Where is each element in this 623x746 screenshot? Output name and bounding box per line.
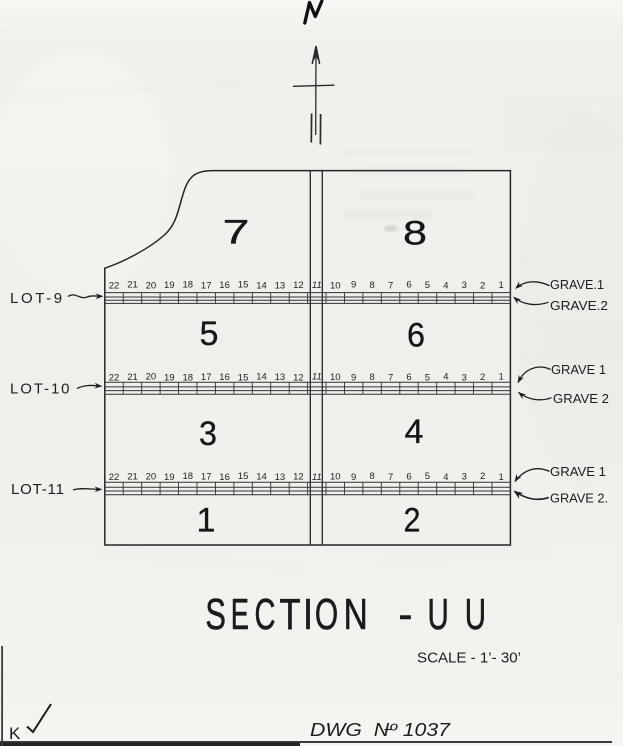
svg-text:2: 2 — [480, 471, 485, 482]
svg-text:7: 7 — [388, 472, 393, 483]
svg-text:17: 17 — [201, 372, 212, 383]
svg-text:8: 8 — [369, 471, 374, 482]
svg-text:10: 10 — [330, 280, 341, 291]
svg-text:T: T — [280, 590, 301, 639]
svg-text:19: 19 — [164, 280, 175, 291]
svg-text:3: 3 — [462, 373, 467, 384]
svg-text:S: S — [205, 591, 226, 640]
svg-text:C: C — [255, 589, 276, 639]
svg-text:GRAVE.1: GRAVE.1 — [550, 278, 604, 292]
svg-text:20: 20 — [146, 472, 157, 483]
svg-text:LOT-10: LOT-10 — [10, 381, 71, 398]
svg-text:8: 8 — [369, 280, 374, 291]
svg-text:4: 4 — [405, 413, 424, 451]
svg-text:N: N — [344, 591, 368, 639]
svg-text:O: O — [315, 589, 338, 638]
svg-text:9: 9 — [351, 373, 356, 384]
svg-text:E: E — [231, 589, 249, 638]
svg-text:GRAVE 2: GRAVE 2 — [553, 392, 609, 406]
svg-text:14: 14 — [256, 372, 267, 383]
svg-text:6: 6 — [406, 472, 411, 483]
svg-text:7: 7 — [223, 214, 250, 252]
svg-text:11: 11 — [312, 280, 322, 291]
svg-text:19: 19 — [164, 372, 175, 383]
svg-text:GRAVE.2: GRAVE.2 — [550, 299, 608, 313]
svg-text:7: 7 — [388, 372, 393, 383]
svg-text:10: 10 — [330, 372, 341, 383]
svg-text:2: 2 — [404, 502, 421, 540]
svg-text:9: 9 — [351, 472, 356, 483]
svg-text:13: 13 — [275, 372, 286, 383]
svg-text:8: 8 — [403, 215, 427, 253]
svg-text:5: 5 — [425, 471, 430, 482]
svg-text:K: K — [9, 724, 21, 743]
svg-text:7: 7 — [388, 281, 393, 292]
svg-text:12: 12 — [293, 373, 304, 384]
svg-text:GRAVE 1: GRAVE 1 — [551, 363, 606, 377]
svg-text:16: 16 — [219, 280, 230, 291]
svg-text:3: 3 — [199, 415, 217, 453]
svg-text:17: 17 — [201, 281, 212, 292]
svg-text:15: 15 — [238, 280, 249, 291]
svg-text:6: 6 — [406, 372, 411, 383]
svg-text:LOT-9: LOT-9 — [10, 290, 65, 307]
svg-text:5: 5 — [200, 315, 219, 353]
svg-text:20: 20 — [146, 372, 157, 383]
svg-text:5: 5 — [425, 372, 430, 383]
svg-text:13: 13 — [275, 281, 286, 292]
svg-text:2: 2 — [480, 280, 485, 291]
svg-text:-: - — [399, 590, 413, 639]
svg-text:11: 11 — [312, 472, 322, 483]
svg-text:5: 5 — [425, 280, 430, 291]
svg-text:18: 18 — [183, 280, 194, 291]
svg-text:U: U — [428, 589, 449, 638]
svg-text:12: 12 — [293, 280, 304, 291]
svg-text:4: 4 — [443, 281, 448, 292]
svg-text:15: 15 — [238, 372, 249, 383]
svg-text:2: 2 — [480, 372, 485, 383]
svg-text:1: 1 — [499, 372, 504, 383]
svg-text:21: 21 — [127, 280, 138, 291]
svg-text:I: I — [303, 590, 313, 639]
svg-text:11: 11 — [312, 372, 322, 383]
svg-text:20: 20 — [146, 281, 157, 292]
svg-text:1: 1 — [499, 472, 504, 483]
svg-text:GRAVE 1: GRAVE 1 — [550, 465, 606, 479]
svg-text:1: 1 — [197, 502, 216, 540]
svg-text:3: 3 — [462, 472, 467, 483]
svg-text:12: 12 — [293, 471, 304, 482]
svg-text:3: 3 — [462, 280, 467, 291]
svg-text:22: 22 — [109, 280, 120, 291]
svg-text:16: 16 — [219, 372, 230, 383]
svg-text:SCALE - 1’- 30’: SCALE - 1’- 30’ — [417, 651, 521, 667]
svg-text:22: 22 — [109, 472, 120, 483]
svg-text:18: 18 — [183, 471, 194, 482]
svg-text:14: 14 — [256, 280, 267, 291]
svg-text:8: 8 — [369, 372, 374, 383]
svg-text:6: 6 — [406, 280, 411, 291]
svg-text:6: 6 — [407, 317, 425, 355]
svg-text:22: 22 — [109, 373, 120, 384]
svg-text:15: 15 — [238, 471, 249, 482]
svg-text:14: 14 — [256, 472, 267, 483]
svg-text:4: 4 — [443, 372, 448, 383]
svg-text:U: U — [465, 589, 486, 638]
svg-text:16: 16 — [219, 472, 230, 483]
svg-text:18: 18 — [183, 373, 194, 384]
svg-text:21: 21 — [127, 471, 138, 482]
svg-text:1: 1 — [499, 280, 504, 291]
svg-text:GRAVE 2.: GRAVE 2. — [550, 492, 608, 506]
svg-text:17: 17 — [201, 472, 212, 483]
svg-text:LOT-11: LOT-11 — [11, 481, 65, 498]
svg-text:19: 19 — [164, 472, 175, 483]
svg-text:4: 4 — [443, 472, 448, 483]
svg-text:9: 9 — [351, 280, 356, 291]
svg-text:10: 10 — [330, 472, 341, 483]
svg-text:DWG Nº 1037: DWG Nº 1037 — [310, 720, 451, 740]
svg-text:21: 21 — [127, 372, 138, 383]
svg-text:13: 13 — [275, 472, 286, 483]
